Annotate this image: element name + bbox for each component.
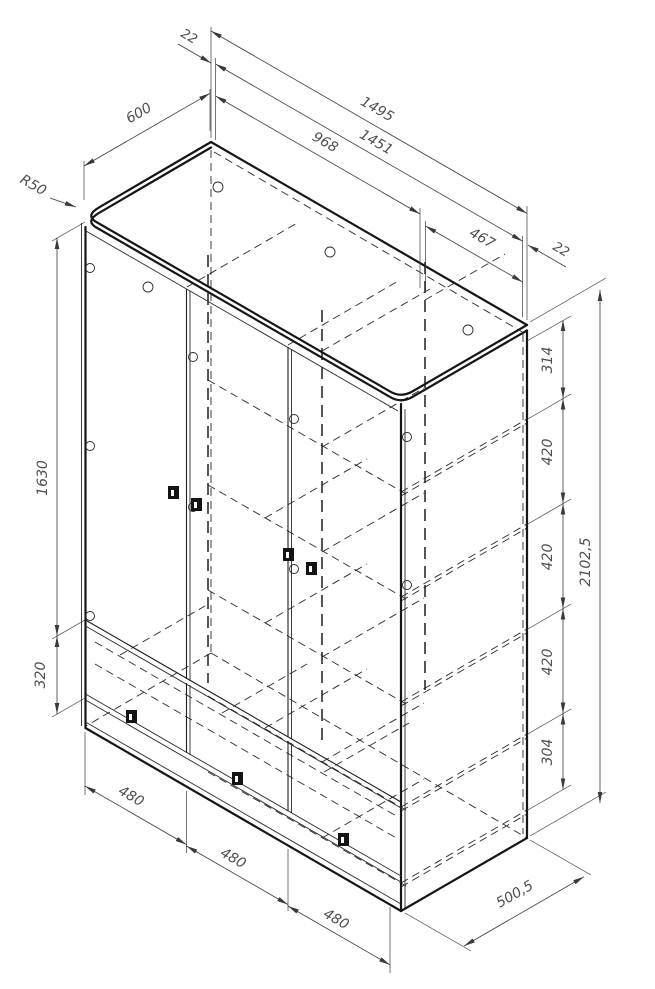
dim-label-depth-top: 600	[123, 100, 154, 127]
dim-label-overall-height: 2102,5	[578, 537, 594, 586]
dim-label-drawer-section-height: 320	[33, 662, 49, 689]
dim-label-shelf-spacing-2: 420	[540, 439, 556, 466]
dim-label-shelf-spacing-4: 420	[540, 649, 556, 676]
door-handle	[191, 498, 202, 511]
dim-label-door-width-3: 480	[320, 906, 351, 933]
dim-label-shelf-spacing-1: 314	[540, 347, 556, 374]
dim-label-right-section-width: 467	[466, 225, 497, 252]
door-handle	[168, 486, 179, 499]
door-handles	[126, 486, 349, 846]
dim-label-shelf-spacing-5: 304	[540, 739, 556, 766]
dim-label-door-width-2: 480	[217, 845, 248, 872]
cabinet-outline	[82, 142, 528, 911]
door-handle	[283, 548, 294, 561]
dim-label-door-height: 1630	[35, 460, 51, 496]
dim-label-corner-radius: R50	[17, 172, 49, 200]
dim-label-top-thickness-left: 22	[178, 26, 200, 47]
fastener-symbols	[86, 182, 474, 621]
dim-label-overall-width: 1495	[358, 94, 397, 126]
door-handle	[306, 562, 317, 575]
dim-label-interior-width: 1451	[357, 127, 396, 159]
dim-label-depth-bottom: 500,5	[494, 878, 537, 912]
dimension-lines	[50, 31, 600, 965]
wardrobe-isometric-drawing: 22 1495 1451 968 467 22 600 R50 1630 320…	[0, 0, 655, 989]
drawer-handle	[126, 710, 137, 723]
dim-label-shelf-spacing-3: 420	[540, 544, 556, 571]
dim-label-top-thickness-right: 22	[550, 239, 572, 260]
technical-drawing-page: 22 1495 1451 968 467 22 600 R50 1630 320…	[0, 0, 655, 989]
drawer-handle	[338, 833, 349, 846]
drawer-handle	[232, 772, 243, 785]
